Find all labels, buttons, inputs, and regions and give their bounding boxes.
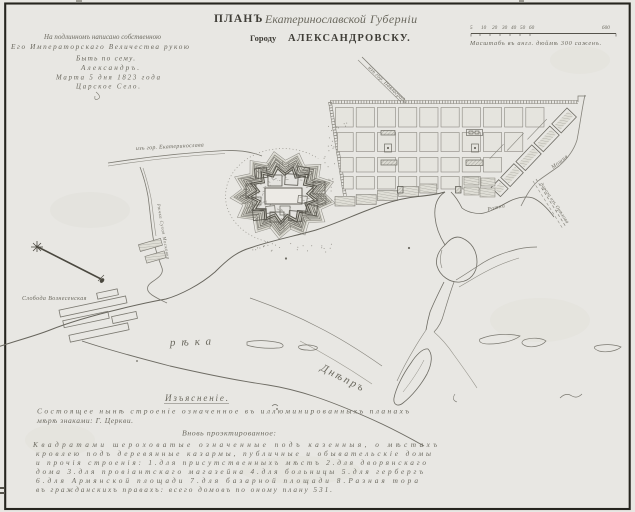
svg-text:дома 3.для провіантскаго магаз: дома 3.для провіантскаго магазейна 4.для… xyxy=(36,467,423,476)
svg-text:Слобода Вознесенская: Слобода Вознесенская xyxy=(22,295,87,302)
svg-text:и прочія строенія: 1.для прису: и прочія строенія: 1.для присутственныхъ… xyxy=(36,458,426,467)
svg-text:На подлинномъ написано собстве: На подлинномъ написано собственною xyxy=(43,34,161,41)
svg-text:30: 30 xyxy=(502,25,508,31)
svg-text:кровлею подъ деревянные казарм: кровлею подъ деревянные казармы, публичн… xyxy=(36,449,431,458)
svg-text:5: 5 xyxy=(470,25,473,31)
svg-text:мѣрѣ знаками: Г. Церкви.: мѣрѣ знаками: Г. Церкви. xyxy=(36,416,133,425)
svg-text:50: 50 xyxy=(520,25,526,31)
svg-text:40: 40 xyxy=(511,24,517,31)
svg-text:Масштабъ въ англ. дюймѣ 300 са: Масштабъ въ англ. дюймѣ 300 саженъ. xyxy=(469,40,602,47)
svg-text:Вновь проэктированное:: Вновь проэктированное: xyxy=(182,429,276,438)
svg-text:10: 10 xyxy=(481,25,487,31)
svg-text:ПЛАНЪ: ПЛАНЪ xyxy=(214,13,264,25)
svg-text:Губерніи: Губерніи xyxy=(369,12,418,26)
svg-text:600: 600 xyxy=(602,25,610,31)
svg-text:Квадратами шероховатые означен: Квадратами шероховатые означенные подъ к… xyxy=(32,440,437,449)
svg-text:рѣка: рѣка xyxy=(169,335,218,349)
svg-text:АЛЕКСАНДРОВСКУ.: АЛЕКСАНДРОВСКУ. xyxy=(288,33,411,44)
svg-text:Екатеринославской: Екатеринославской xyxy=(264,12,366,26)
svg-text:Состоящее нынѣ строеніе означе: Состоящее нынѣ строеніе означенное въ ил… xyxy=(37,407,409,416)
svg-text:20: 20 xyxy=(492,25,498,31)
svg-text:въ гражданскихъ правахъ: всего: въ гражданскихъ правахъ: всего домовъ по… xyxy=(36,485,332,494)
svg-text:Городу: Городу xyxy=(250,33,277,43)
svg-text:Царское Село.: Царское Село. xyxy=(75,84,140,91)
svg-text:60: 60 xyxy=(529,25,535,31)
svg-text:Быть по сему.: Быть по сему. xyxy=(75,55,135,63)
svg-text:Его Императорскаго Величества: Его Императорскаго Величества рукою xyxy=(10,43,189,51)
